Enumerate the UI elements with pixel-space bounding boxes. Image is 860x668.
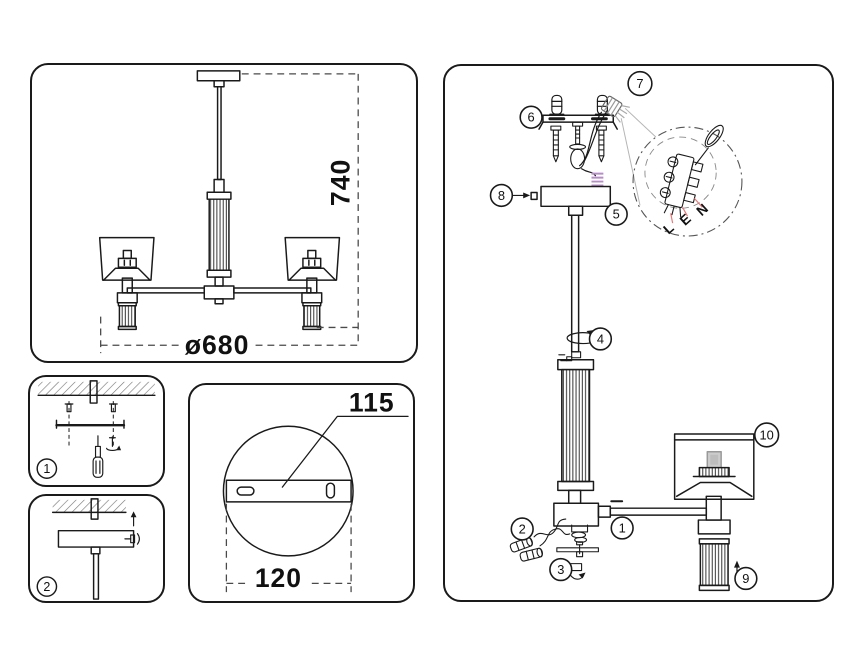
center-hub bbox=[204, 286, 234, 299]
ceiling-plate bbox=[197, 71, 239, 81]
hanging-rod bbox=[94, 554, 99, 599]
badge-6: 6 bbox=[528, 110, 535, 125]
assembly-panel: L E N bbox=[443, 64, 834, 602]
badge-5: 5 bbox=[613, 207, 620, 222]
chandelier-dimension-drawing: 740 ø680 bbox=[32, 65, 416, 361]
instruction-sheet: { "colors": { "line": "#1a1a1a", "accent… bbox=[0, 0, 860, 668]
threaded-nipple-marks bbox=[591, 174, 603, 186]
badge3-nut-icon bbox=[571, 564, 586, 580]
canopy-bottom-view: 115 120 bbox=[190, 385, 413, 601]
lamp-arm bbox=[610, 508, 706, 515]
center-hub bbox=[554, 503, 599, 526]
step1-drawing: 1 bbox=[30, 377, 163, 485]
lamp-assembly bbox=[675, 434, 754, 590]
hook bbox=[702, 123, 726, 150]
step1-panel: 1 bbox=[28, 375, 165, 487]
badge-10: 10 bbox=[760, 427, 774, 442]
center-column bbox=[207, 192, 231, 277]
detail-inner-circle bbox=[645, 137, 716, 208]
terminal-label-earth: E bbox=[676, 210, 694, 228]
bracket-dimension-label: 115 bbox=[349, 388, 395, 418]
screwdriver-icon bbox=[93, 436, 103, 477]
height-dimension-label: 740 bbox=[325, 159, 355, 206]
pendant-cylinder bbox=[699, 539, 729, 590]
bulb bbox=[710, 455, 718, 465]
side-screw-icon bbox=[125, 534, 139, 545]
bracket-slot-horizontal bbox=[237, 487, 254, 495]
ceiling-hatch bbox=[53, 500, 126, 513]
step2-badge: 2 bbox=[43, 580, 50, 594]
lamp-assembly bbox=[100, 238, 154, 330]
wire-loop bbox=[571, 149, 585, 169]
diameter-dimension-label: ø680 bbox=[185, 330, 250, 360]
canopy-plate bbox=[58, 531, 133, 547]
up-arrow-icon bbox=[131, 511, 137, 525]
canopy-dimension-label: 120 bbox=[255, 563, 302, 593]
bracket-slot-vertical bbox=[327, 483, 335, 498]
step1-badge: 1 bbox=[43, 462, 50, 476]
center-column bbox=[558, 360, 594, 504]
part-badges: 1 2 3 4 5 6 7 8 9 10 bbox=[491, 72, 779, 590]
step2-drawing: 2 bbox=[30, 496, 163, 601]
left-arm bbox=[127, 288, 204, 293]
badge-2: 2 bbox=[519, 521, 526, 536]
pendant-cylinder bbox=[118, 303, 136, 330]
canopy-plate bbox=[541, 187, 610, 207]
badge-3: 3 bbox=[557, 562, 564, 577]
badge-7: 7 bbox=[636, 76, 643, 91]
hanging-rod bbox=[572, 215, 579, 352]
right-arm bbox=[234, 288, 311, 293]
hanging-rod bbox=[218, 87, 221, 180]
step2-panel: 2 bbox=[28, 494, 165, 603]
terminal-label-neutral: N bbox=[693, 200, 711, 219]
exploded-assembly-drawing: L E N bbox=[445, 66, 832, 600]
badge-8: 8 bbox=[498, 188, 505, 203]
diffuser bbox=[677, 482, 752, 496]
canopy-detail-panel: 115 120 bbox=[188, 383, 415, 603]
badge-4: 4 bbox=[597, 331, 604, 346]
overview-dimensions-panel: 740 ø680 bbox=[30, 63, 418, 363]
wall-anchors bbox=[550, 95, 609, 114]
canopy-circle bbox=[223, 426, 353, 556]
badge-1: 1 bbox=[619, 520, 626, 535]
badge8-arrow bbox=[512, 192, 530, 198]
badge-9: 9 bbox=[742, 571, 749, 586]
hub-hardware bbox=[557, 525, 599, 557]
